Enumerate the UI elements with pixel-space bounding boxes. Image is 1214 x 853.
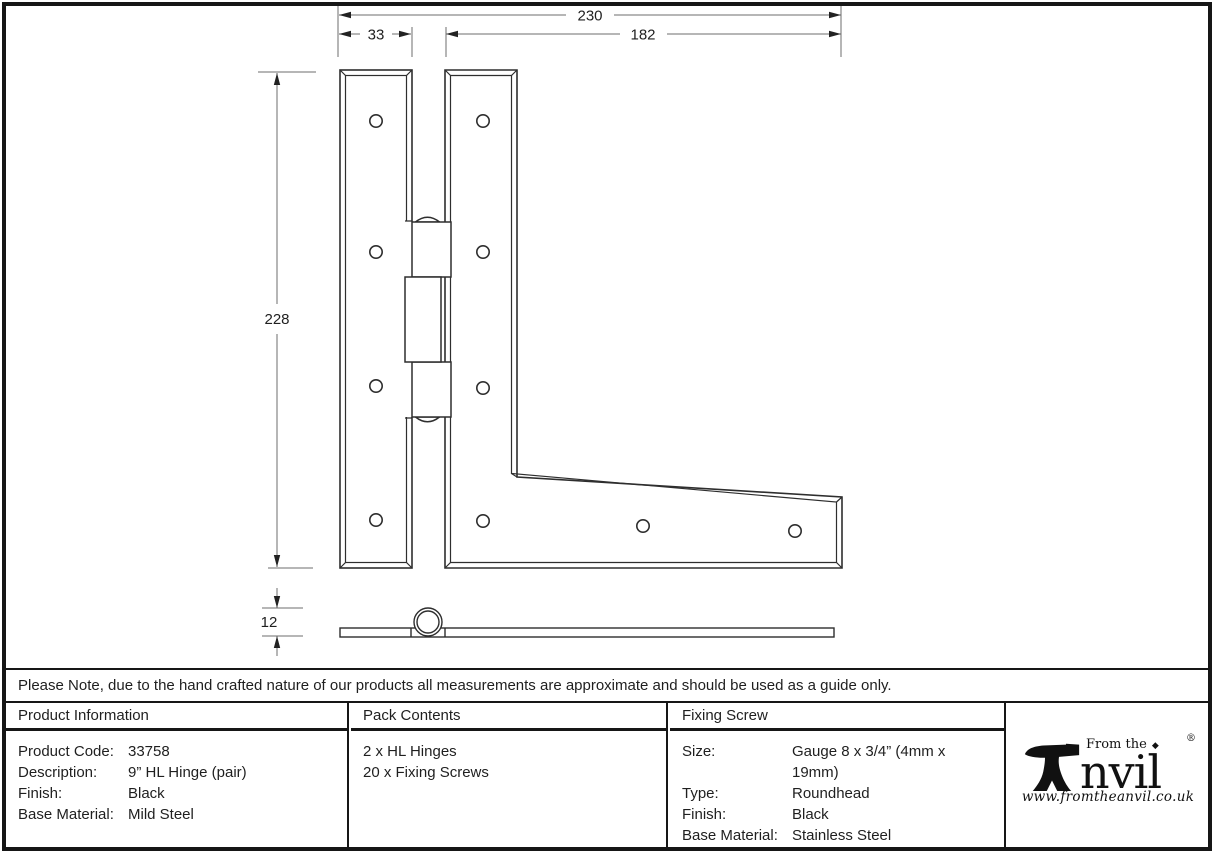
page-border: [2, 2, 1212, 851]
datasheet-page: 230 33 182 228 12: [0, 0, 1214, 853]
